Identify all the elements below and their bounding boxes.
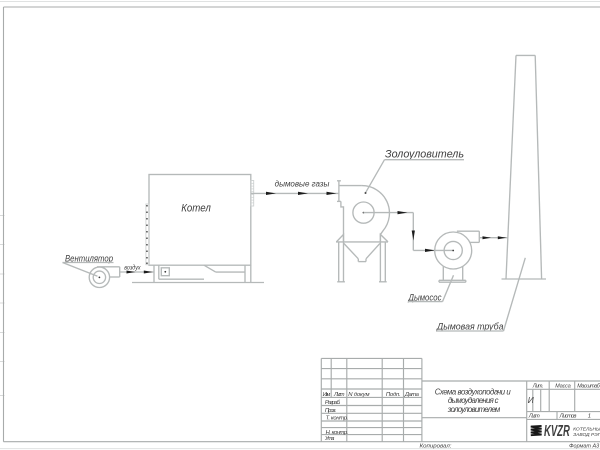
svg-text:1: 1 <box>588 413 591 419</box>
svg-text:N докум: N докум <box>348 392 369 398</box>
svg-text:Листов: Листов <box>559 413 577 419</box>
svg-text:KVZR: KVZR <box>544 423 570 440</box>
svg-text:Разраб.: Разраб. <box>325 400 341 406</box>
svg-text:воздух: воздух <box>124 263 141 271</box>
svg-text:Лист: Лист <box>528 413 540 419</box>
svg-text:Н. контр.: Н. контр. <box>326 430 349 436</box>
svg-text:КОТЕЛЬНЫЙ: КОТЕЛЬНЫЙ <box>573 424 600 432</box>
svg-text:Лист: Лист <box>333 392 345 398</box>
svg-text:Т. контр.: Т. контр. <box>326 416 349 422</box>
svg-text:Дата: Дата <box>404 392 420 398</box>
svg-text:Масса: Масса <box>555 384 570 390</box>
svg-text:Формат А3: Формат А3 <box>569 444 599 450</box>
svg-text:Подп.: Подп. <box>386 392 401 398</box>
svg-text:Пров.: Пров. <box>325 408 336 414</box>
svg-text:Схема воздухоподачи и: Схема воздухоподачи и <box>435 387 512 396</box>
svg-text:И: И <box>528 395 534 405</box>
svg-text:Изм.: Изм. <box>323 392 331 398</box>
svg-text:Масштаб: Масштаб <box>577 384 600 390</box>
svg-text:дымоудаления с: дымоудаления с <box>448 396 499 405</box>
svg-text:Лит.: Лит. <box>532 384 544 390</box>
svg-text:Золоуловитель: Золоуловитель <box>385 149 464 161</box>
svg-text:дымовые газы: дымовые газы <box>275 179 330 188</box>
svg-text:Копировал:: Копировал: <box>420 444 453 450</box>
svg-text:Котел: Котел <box>181 203 211 215</box>
svg-text:ЗАВОД РЭП: ЗАВОД РЭП <box>573 432 600 438</box>
svg-text:Утв.: Утв. <box>324 436 335 442</box>
svg-text:золоуловителем: золоуловителем <box>447 405 501 414</box>
svg-text:Вентилятор: Вентилятор <box>65 253 113 263</box>
svg-text:Дымовая труба: Дымовая труба <box>436 321 503 331</box>
